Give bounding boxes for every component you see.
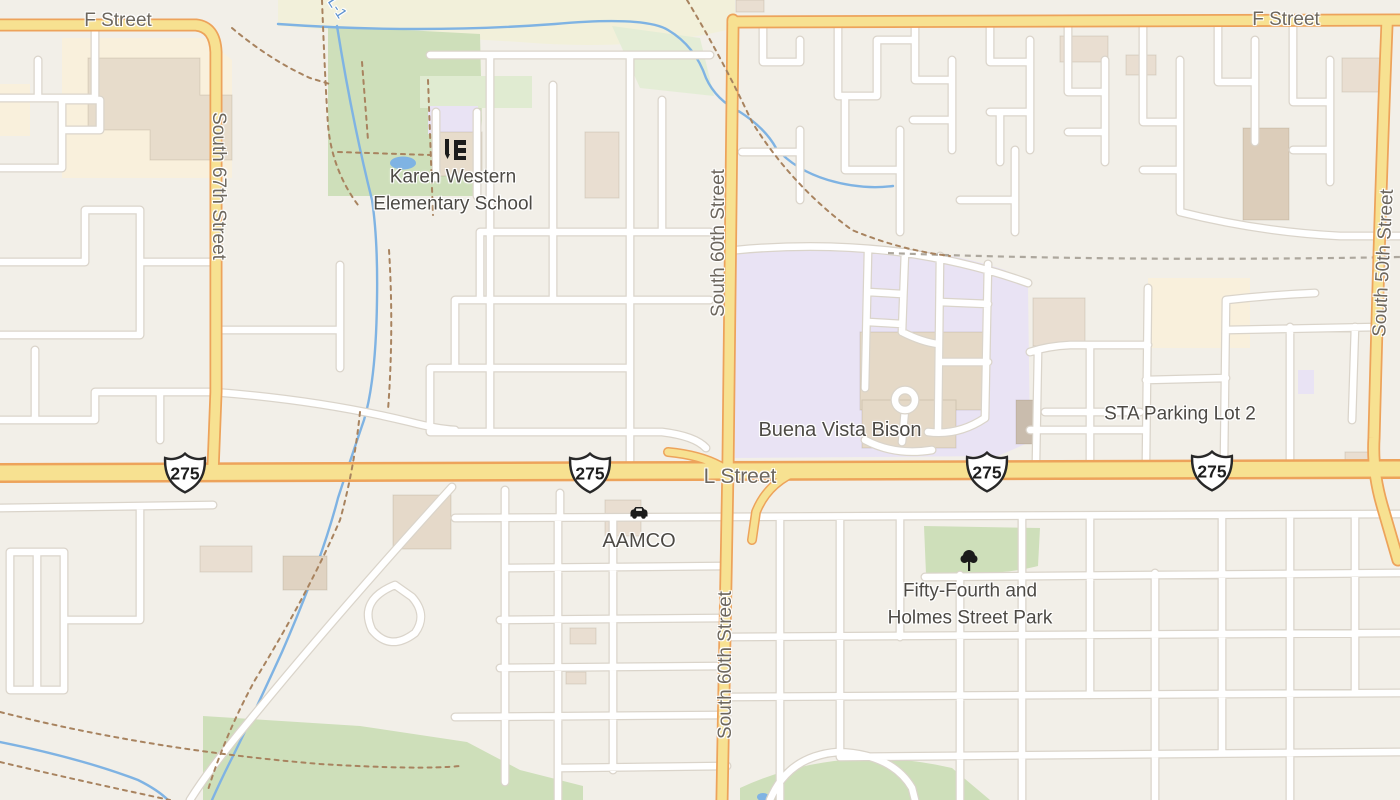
road-label-l-street: L Street <box>704 465 777 489</box>
railroad-dashes <box>888 253 1400 259</box>
route-shield-275-3: 275 <box>964 451 1010 493</box>
tree-icon <box>959 549 979 573</box>
poi-label-holmes-street-park: Fifty-Fourth and Holmes Street Park <box>888 578 1053 631</box>
car-icon <box>629 505 650 520</box>
route-shield-number: 275 <box>567 463 613 484</box>
road-label-south-60th-lower: South 60th Street <box>715 591 737 739</box>
poi-label-buena-vista-bison: Buena Vista Bison <box>758 416 921 444</box>
road-label-south-60th-upper: South 60th Street <box>708 169 730 317</box>
poi-label-karen-western-school: Karen Western Elementary School <box>373 164 532 217</box>
poi-label-sta-parking-lot-2: STA Parking Lot 2 <box>1104 402 1256 429</box>
route-shield-number: 275 <box>964 462 1010 483</box>
route-shield-275-4: 275 <box>1189 450 1235 492</box>
road-label-f-street-right: F Street <box>1252 9 1320 31</box>
poi-label-aamco: AAMCO <box>602 527 675 555</box>
poi-label-line: Karen Western <box>373 164 532 191</box>
school-icon <box>442 138 470 162</box>
poi-label-line: Elementary School <box>373 191 532 218</box>
poi-label-line: Fifty-Fourth and <box>888 578 1053 605</box>
poi-label-line: Holmes Street Park <box>888 605 1053 632</box>
route-shield-number: 275 <box>162 463 208 484</box>
map-canvas[interactable]: F Street F Street South 67th Street Sout… <box>0 0 1400 800</box>
route-shield-number: 275 <box>1189 461 1235 482</box>
road-label-south-67th: South 67th Street <box>207 112 229 260</box>
route-shield-275-1: 275 <box>162 452 208 494</box>
road-label-f-street-left: F Street <box>84 10 152 32</box>
route-shield-275-2: 275 <box>567 452 613 494</box>
